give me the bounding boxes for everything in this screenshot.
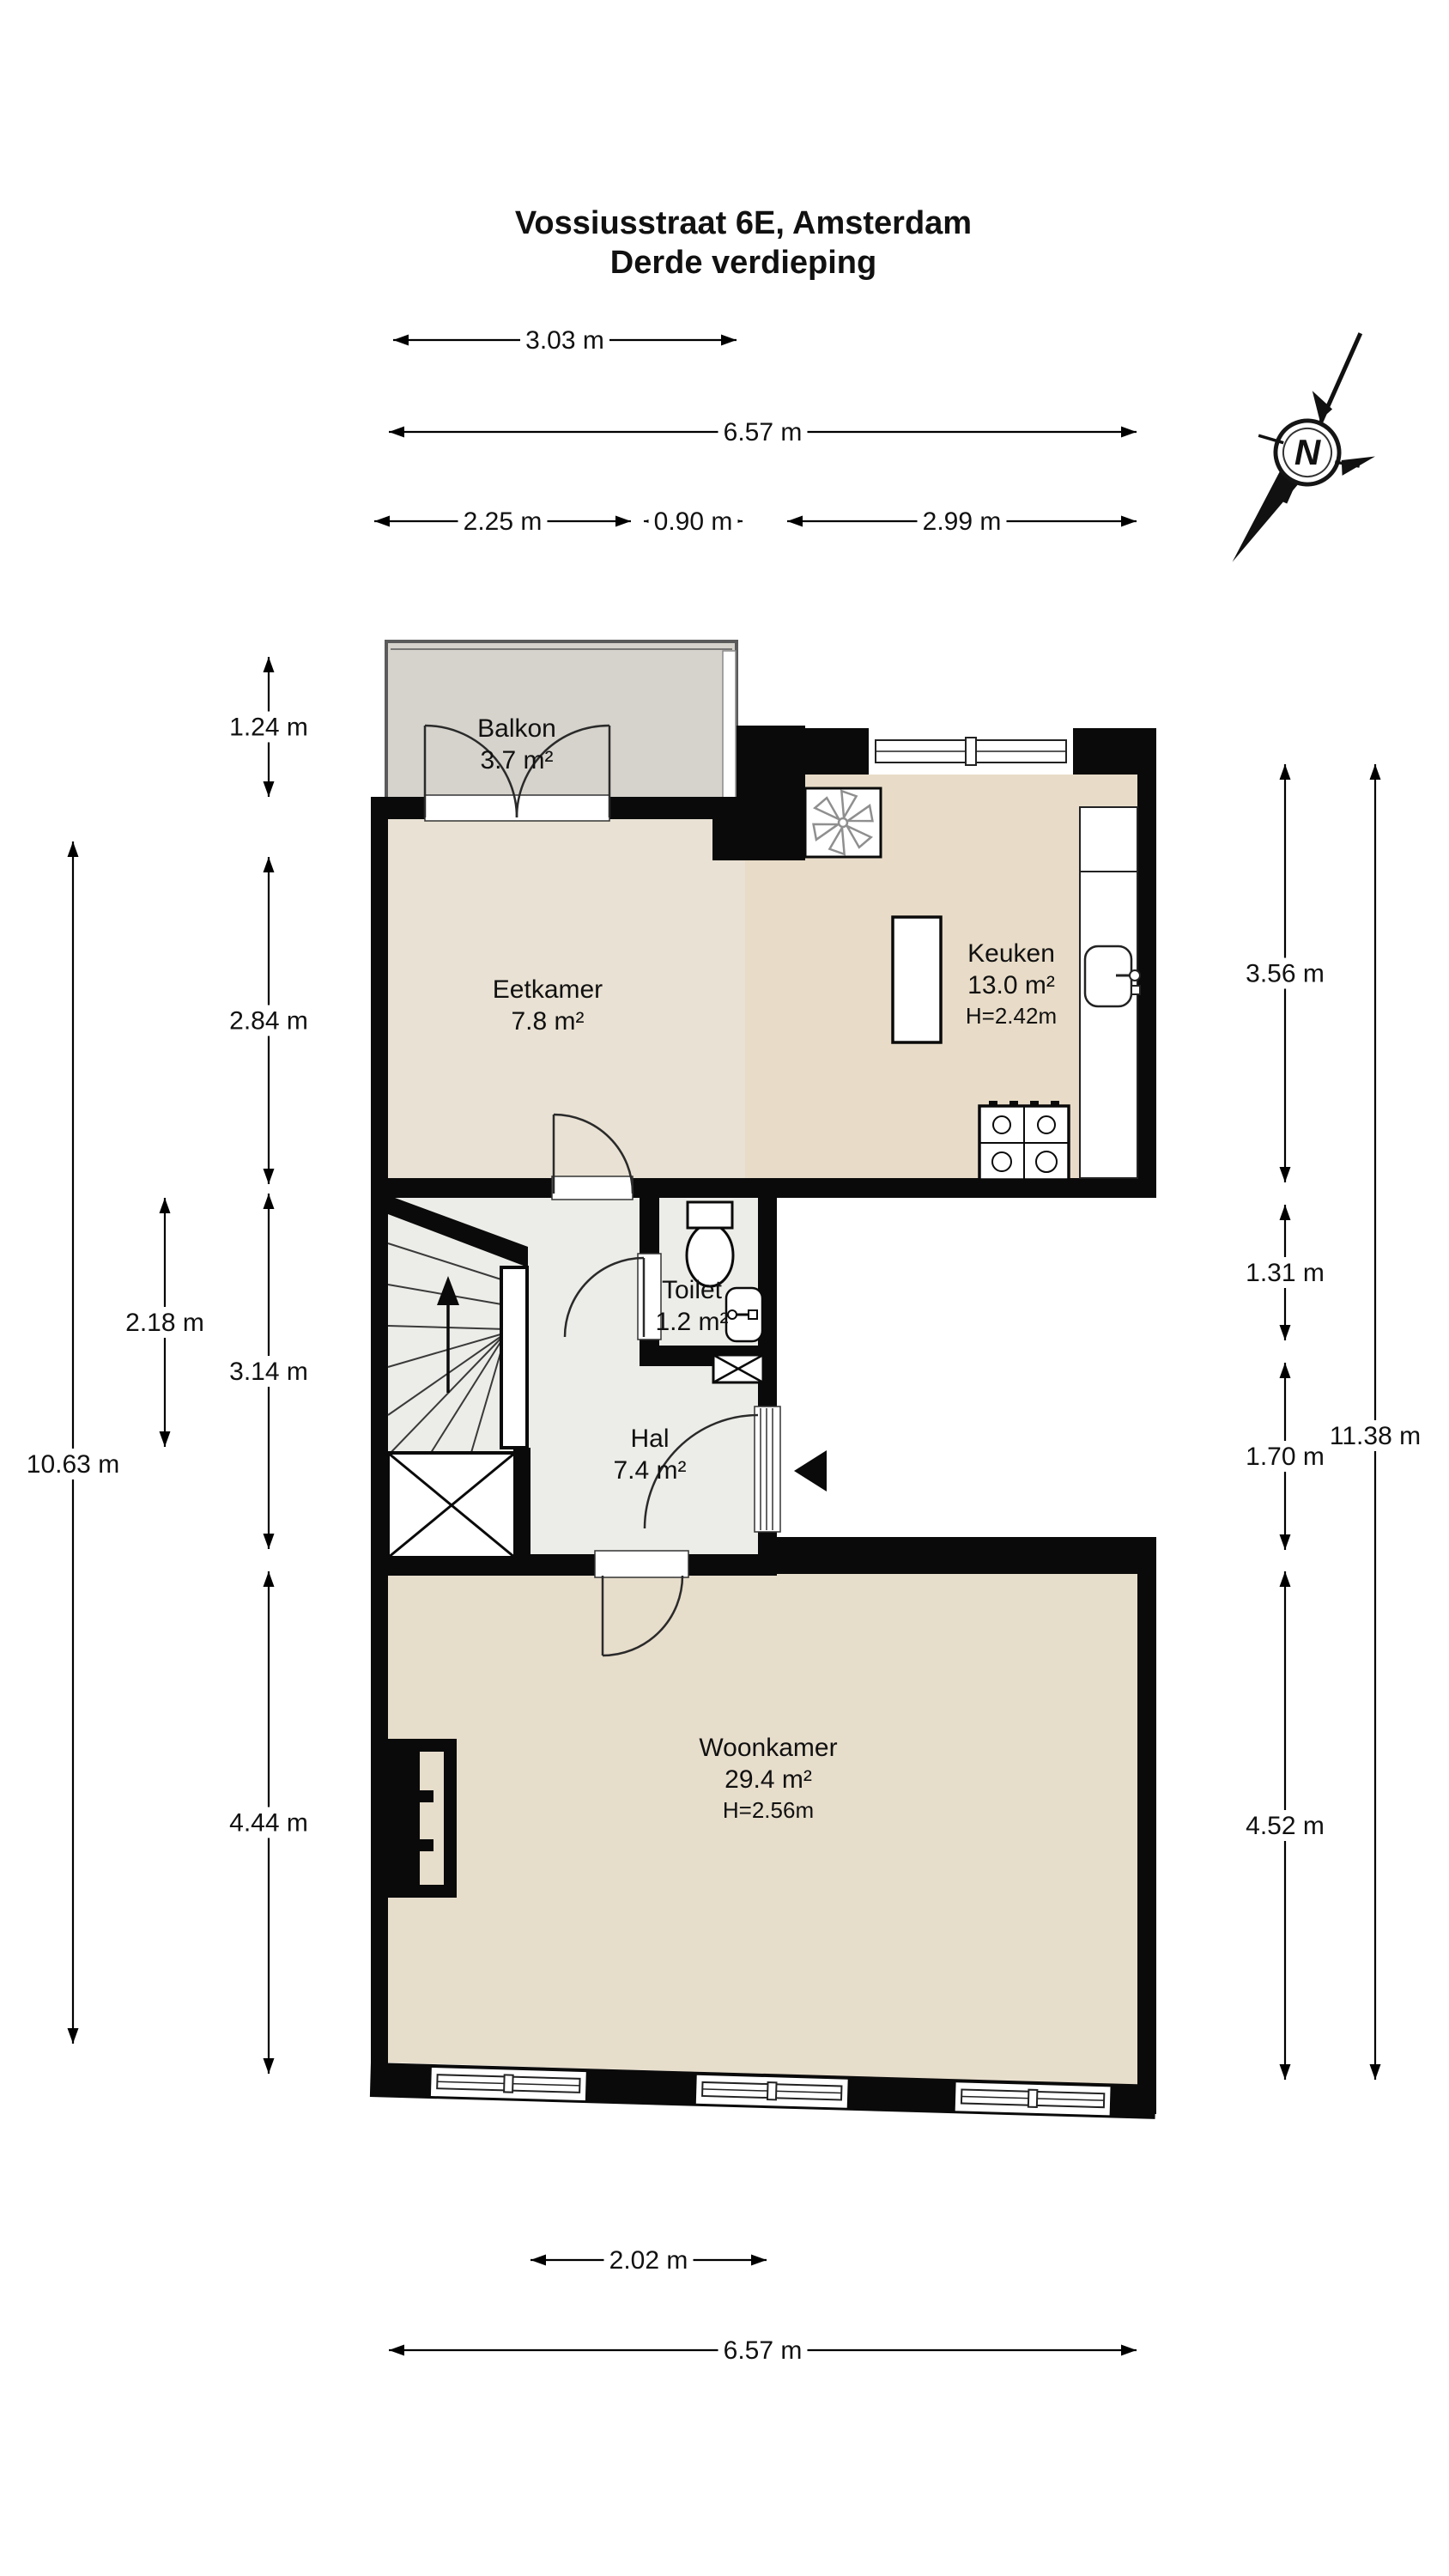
svg-text:7.8 m²: 7.8 m² xyxy=(511,1007,584,1036)
dimension-label: 3.56 m xyxy=(1246,960,1325,988)
woonkamer-door-jamb xyxy=(595,1551,688,1577)
svg-text:Eetkamer: Eetkamer xyxy=(493,975,603,1004)
dimension: 2.02 m xyxy=(530,2245,767,2275)
shaft-cross-icon xyxy=(388,1453,515,1558)
dimension-label: 11.38 m xyxy=(1330,1422,1421,1450)
wall xyxy=(371,1178,554,1198)
wall xyxy=(1137,728,1156,1198)
floorplan-canvas: Vossiusstraat 6E, Amsterdam Derde verdie… xyxy=(0,0,1449,2576)
dimension-label: 2.84 m xyxy=(229,1007,308,1036)
dimension: 4.44 m xyxy=(224,1571,313,2074)
dimension-label: 1.31 m xyxy=(1246,1259,1325,1287)
dimension: 2.25 m xyxy=(374,506,631,537)
dimension-label: 2.99 m xyxy=(923,507,1002,536)
compass-north-label: N xyxy=(1294,432,1322,472)
svg-text:Balkon: Balkon xyxy=(477,714,556,743)
woonkamer-floor xyxy=(388,1571,1137,2085)
svg-text:29.4 m²: 29.4 m² xyxy=(724,1765,812,1794)
dimension: 10.63 m xyxy=(22,841,124,2044)
svg-text:H=2.42m: H=2.42m xyxy=(966,1003,1057,1029)
dimension-label: 6.57 m xyxy=(724,2336,803,2365)
wall xyxy=(777,1537,1156,1574)
dimension: 0.90 m xyxy=(644,506,743,537)
window-icon xyxy=(431,2068,586,2100)
wall xyxy=(371,797,388,1198)
entrance-arrow-icon xyxy=(794,1450,827,1492)
svg-text:1.2 m²: 1.2 m² xyxy=(655,1308,728,1336)
floorplan-page: Vossiusstraat 6E, Amsterdam Derde verdie… xyxy=(0,0,1449,2576)
window-icon xyxy=(869,732,1073,771)
svg-text:Toilet: Toilet xyxy=(662,1276,723,1304)
dimension: 4.52 m xyxy=(1240,1571,1330,2080)
dimension-label: 1.70 m xyxy=(1246,1443,1325,1471)
dimension-label: 4.44 m xyxy=(229,1809,308,1838)
dimension: 2.18 m xyxy=(120,1198,209,1447)
dimension: 6.57 m xyxy=(389,2335,1137,2366)
compass-icon: N xyxy=(1207,313,1418,598)
balcony-post xyxy=(723,651,736,799)
dimension-label: 3.03 m xyxy=(525,326,604,355)
svg-text:Keuken: Keuken xyxy=(967,939,1055,968)
balkon-floor xyxy=(386,640,737,797)
kitchen-counter xyxy=(1080,807,1140,1178)
dimension-label: 2.25 m xyxy=(464,507,543,536)
entrance-door-jamb xyxy=(755,1406,780,1532)
dimension: 3.03 m xyxy=(393,325,737,355)
stove-4-burner-icon xyxy=(979,1101,1069,1180)
chimney-breast xyxy=(388,1739,457,1898)
svg-text:Hal: Hal xyxy=(630,1425,669,1453)
keuken-label: Keuken13.0 m²H=2.42m xyxy=(966,939,1057,1029)
window-icon xyxy=(955,2082,1111,2115)
dimension: 3.56 m xyxy=(1240,764,1330,1182)
kitchen-island xyxy=(893,917,941,1042)
dimension-label: 2.02 m xyxy=(609,2246,688,2275)
dimension-label: 10.63 m xyxy=(27,1450,119,1479)
hand-basin-icon xyxy=(726,1288,762,1341)
dimension: 1.31 m xyxy=(1240,1205,1330,1340)
page-subtitle: Derde verdieping xyxy=(610,245,876,281)
dimension-label: 6.57 m xyxy=(724,418,803,447)
dimension: 3.14 m xyxy=(224,1194,313,1549)
eetkamer-door-jamb xyxy=(552,1176,633,1200)
wall xyxy=(640,1178,1156,1198)
dimension: 11.38 m xyxy=(1325,764,1427,2080)
wall xyxy=(640,1178,659,1255)
wall xyxy=(1137,1539,1156,2114)
svg-text:Woonkamer: Woonkamer xyxy=(699,1734,837,1762)
window-icon xyxy=(696,2075,848,2108)
shaft-cross-icon xyxy=(713,1355,763,1382)
svg-text:3.7 m²: 3.7 m² xyxy=(480,746,553,775)
dimension: 1.24 m xyxy=(224,657,313,797)
dimension: 2.84 m xyxy=(224,857,313,1184)
wall xyxy=(371,1576,388,2093)
svg-text:7.4 m²: 7.4 m² xyxy=(613,1456,686,1485)
ventilation-fan-icon xyxy=(805,788,881,857)
wall xyxy=(687,1554,777,1576)
dimension: 1.70 m xyxy=(1240,1363,1330,1550)
dimension-label: 2.18 m xyxy=(125,1309,204,1337)
svg-text:13.0 m²: 13.0 m² xyxy=(967,971,1055,999)
kitchen-sink-icon xyxy=(1085,946,1140,1006)
wall xyxy=(371,797,425,819)
toilet-icon xyxy=(687,1202,733,1286)
dimension-label: 0.90 m xyxy=(654,507,733,536)
dimension-label: 1.24 m xyxy=(229,714,308,742)
dimension-label: 3.14 m xyxy=(229,1358,308,1386)
svg-text:H=2.56m: H=2.56m xyxy=(723,1797,814,1823)
wall xyxy=(777,728,869,775)
page-title: Vossiusstraat 6E, Amsterdam xyxy=(515,205,972,241)
wall xyxy=(371,1198,388,1576)
dimension: 6.57 m xyxy=(389,416,1137,447)
dimension: 2.99 m xyxy=(787,506,1137,537)
dimension-label: 4.52 m xyxy=(1246,1812,1325,1840)
